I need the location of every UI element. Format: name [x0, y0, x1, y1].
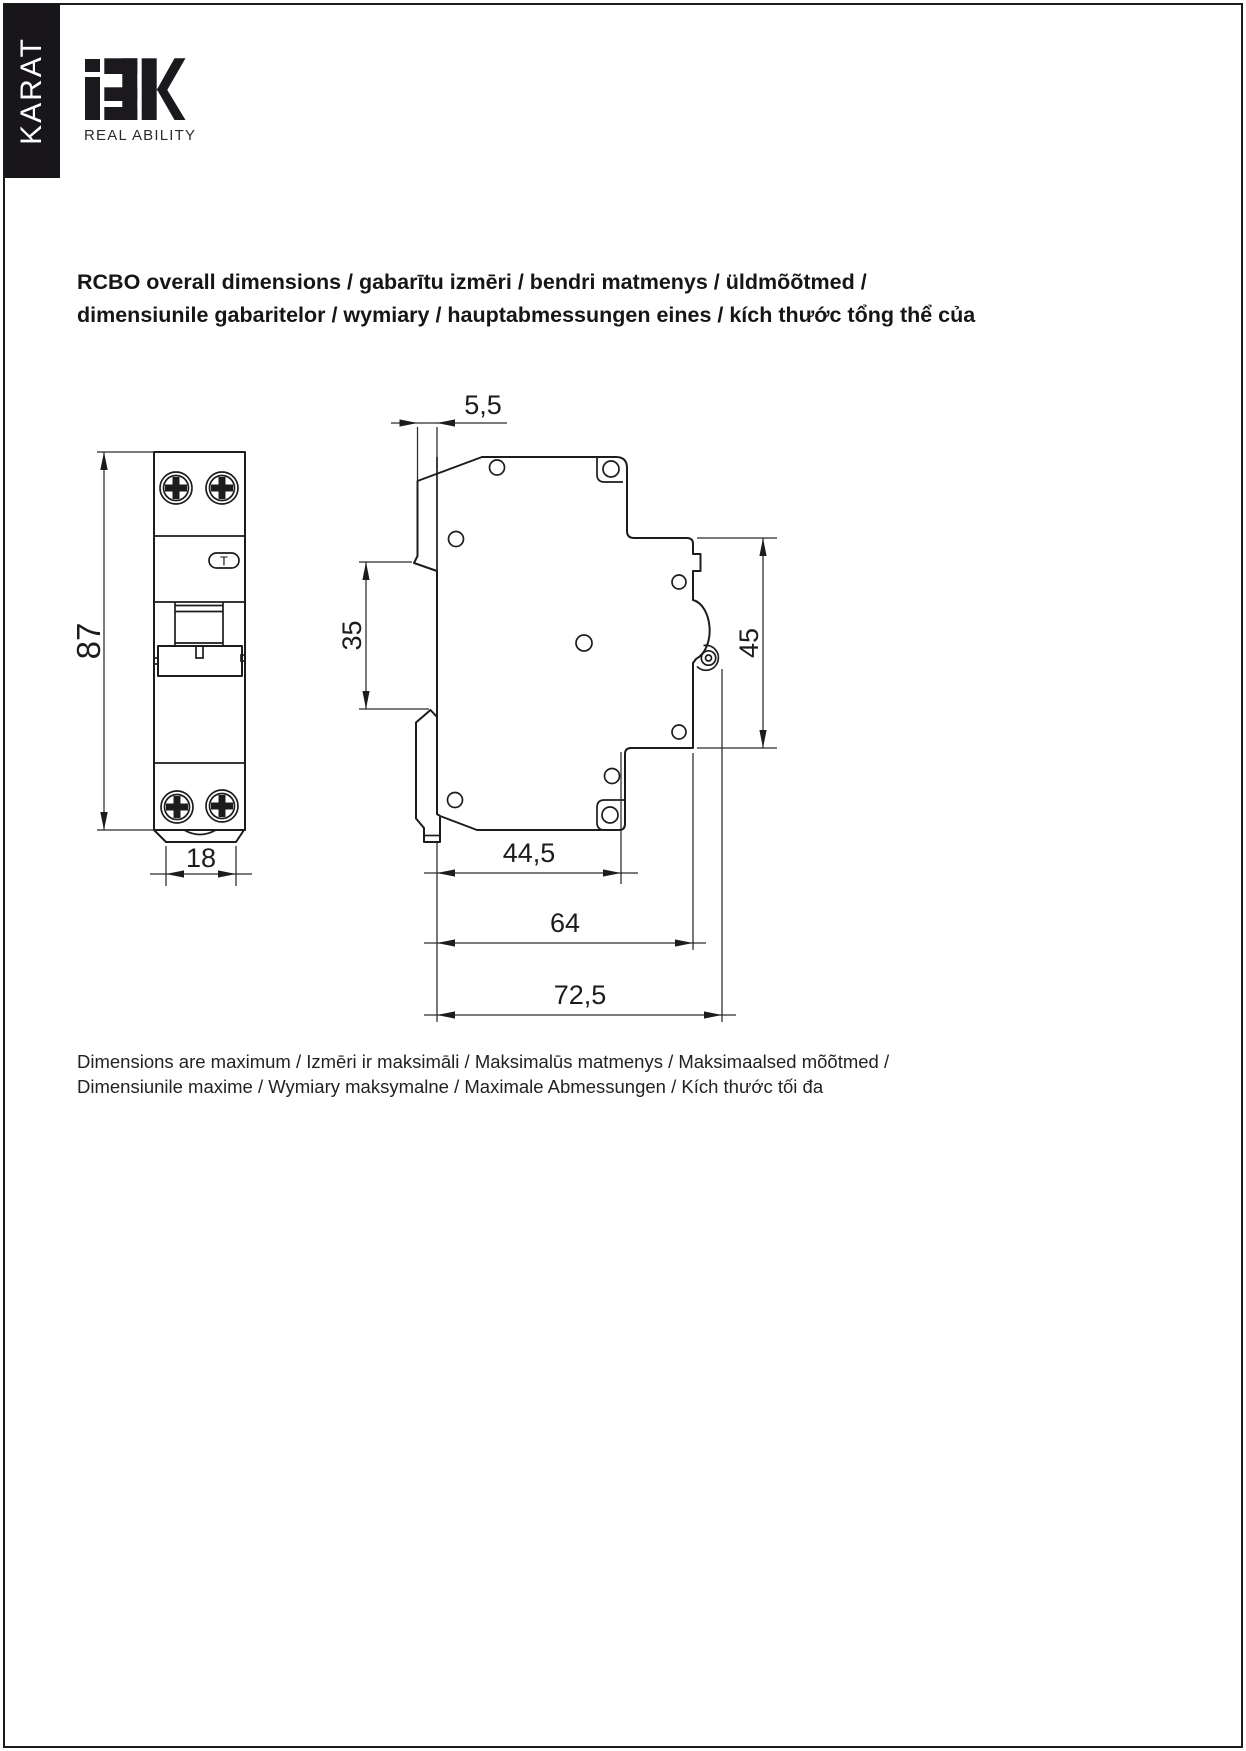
series-sidebar: KARAT: [4, 4, 60, 178]
logo-letter-i: [85, 59, 100, 120]
dimensions-note-line1: Dimensions are maximum / Izmēri ir maksi…: [77, 1049, 1167, 1074]
hole: [448, 793, 463, 808]
dim-label-45: 45: [734, 628, 764, 658]
series-label: KARAT: [15, 37, 49, 145]
dim-label-44-5: 44,5: [503, 838, 556, 868]
brand-tagline: REAL ABILITY: [84, 127, 196, 144]
dim-label-35: 35: [337, 620, 367, 650]
hole: [490, 460, 505, 475]
side-body: [414, 457, 710, 830]
screw-bottom-right: [206, 790, 238, 822]
dim-label-72-5: 72,5: [554, 980, 607, 1010]
screw-top-right: [206, 472, 238, 504]
page-title-line1: RCBO overall dimensions / gabarītu izmēr…: [77, 266, 1167, 299]
dim-label-64: 64: [550, 908, 580, 938]
hole: [672, 575, 686, 589]
hole: [672, 725, 686, 739]
front-foot: [154, 830, 244, 842]
dim-35: 35: [337, 562, 429, 709]
page-title: RCBO overall dimensions / gabarītu izmēr…: [77, 266, 1167, 332]
page-title-line2: dimensiunile gabaritelor / wymiary / hau…: [77, 299, 1167, 332]
dim-87: 87: [70, 452, 154, 830]
side-view: 5,5 35 45: [337, 390, 777, 1022]
front-body: [154, 452, 245, 830]
screw-bottom-left: [161, 791, 193, 823]
screw-top-left: [160, 472, 192, 504]
hole: [605, 769, 620, 784]
hole: [449, 532, 464, 547]
dimension-drawing: T: [60, 350, 800, 1040]
dim-label-5-5: 5,5: [464, 390, 502, 420]
test-button-label: T: [220, 554, 228, 569]
dim-label-18: 18: [186, 843, 216, 873]
dim-label-87: 87: [70, 623, 107, 660]
logo-letter-e: [104, 58, 137, 120]
dimensions-note: Dimensions are maximum / Izmēri ir maksi…: [77, 1049, 1167, 1099]
document-page: KARAT REAL ABILITY RCBO overall dimensio…: [0, 0, 1246, 1751]
iek-logo: [85, 55, 197, 125]
hole: [576, 635, 592, 651]
dim-18: 18: [150, 843, 252, 886]
logo-letter-k: [142, 58, 186, 120]
front-view: T: [70, 452, 252, 886]
dim-45: 45: [697, 538, 777, 748]
dimensions-note-line2: Dimensiunile maxime / Wymiary maksymalne…: [77, 1074, 1167, 1099]
